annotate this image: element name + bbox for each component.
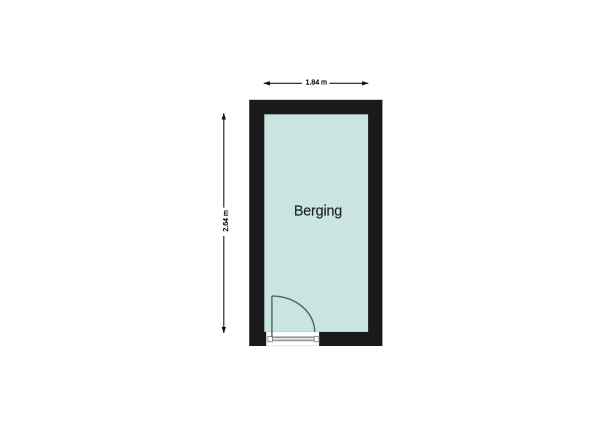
svg-text:2.64 m: 2.64 m xyxy=(223,210,230,232)
svg-text:Berging: Berging xyxy=(294,203,342,219)
svg-text:1.84 m: 1.84 m xyxy=(306,80,328,87)
